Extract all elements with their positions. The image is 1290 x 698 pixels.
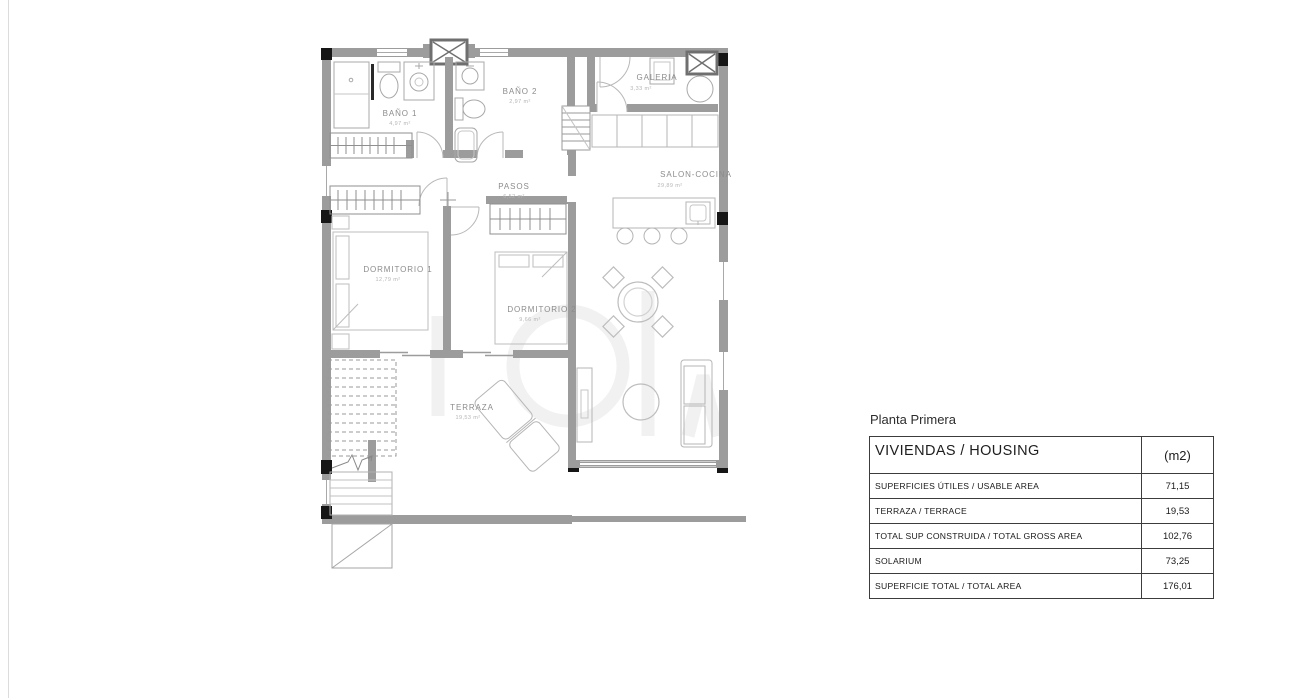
table-header-row: VIVIENDAS / HOUSING (m2): [870, 437, 1214, 474]
room-label-bano1: BAÑO 1: [383, 109, 418, 118]
exterior-stair-ramp: [332, 524, 392, 568]
room-area-terraza: 19,53 m²: [456, 415, 481, 421]
header-m2: (m2): [1142, 437, 1214, 474]
row-value-total-area: 176,01: [1142, 574, 1214, 599]
salon-glass-wall: [580, 462, 716, 467]
room-label-dorm2: DORMITORIO 2: [507, 305, 576, 314]
row-value-usable-area: 71,15: [1142, 474, 1214, 499]
wardrobe-dorm2: [490, 204, 566, 234]
shaft-top-right: [687, 52, 717, 74]
bathroom2-fixtures: [455, 62, 485, 162]
tv-unit: [577, 368, 592, 442]
room-label-pasos: PASOS: [498, 182, 529, 191]
areas-table: VIVIENDAS / HOUSING (m2) SUPERFICIES ÚTI…: [869, 436, 1214, 599]
row-label-solarium: SOLARIUM: [870, 549, 1142, 574]
room-area-salon: 29,89 m²: [658, 183, 683, 189]
floor-plan: BAÑO 1 4,97 m² BAÑO 2 2,97 m² GALERIA 3,…: [318, 36, 748, 581]
kitchen-counter: [592, 115, 718, 147]
wardrobe-bano1: [330, 133, 412, 158]
bathroom1-fixtures: [334, 62, 434, 128]
row-value-terrace: 19,53: [1142, 499, 1214, 524]
salon-door-opening: [567, 176, 577, 202]
row-label-terrace: TERRAZA / TERRACE: [870, 499, 1142, 524]
room-area-bano2: 2,97 m²: [509, 99, 530, 105]
room-label-terraza: TERRAZA: [450, 403, 494, 412]
room-area-dorm1: 12,79 m²: [376, 277, 401, 283]
kitchen-island: [613, 198, 715, 244]
page: BAÑO 1 4,97 m² BAÑO 2 2,97 m² GALERIA 3,…: [0, 0, 1290, 698]
table-row: SUPERFICIES ÚTILES / USABLE AREA 71,15: [870, 474, 1214, 499]
room-label-dorm1: DORMITORIO 1: [363, 265, 432, 274]
staircase: [328, 360, 396, 515]
area-summary: Planta Primera VIVIENDAS / HOUSING (m2) …: [869, 412, 1215, 599]
table-row: SOLARIUM 73,25: [870, 549, 1214, 574]
room-area-bano1: 4,97 m²: [389, 121, 410, 127]
table-row: TOTAL SUP CONSTRUIDA / TOTAL GROSS AREA …: [870, 524, 1214, 549]
room-area-dorm2: 9,66 m²: [519, 317, 540, 323]
room-area-pasos: 6,52 m²: [503, 194, 524, 200]
room-area-galeria: 3,33 m²: [630, 86, 651, 92]
row-label-total-area: SUPERFICIE TOTAL / TOTAL AREA: [870, 574, 1142, 599]
table-title: Planta Primera: [870, 412, 1215, 427]
header-housing: VIVIENDAS / HOUSING: [870, 437, 1142, 474]
row-value-gross-area: 102,76: [1142, 524, 1214, 549]
room-label-bano2: BAÑO 2: [503, 87, 538, 96]
row-label-usable-area: SUPERFICIES ÚTILES / USABLE AREA: [870, 474, 1142, 499]
row-label-gross-area: TOTAL SUP CONSTRUIDA / TOTAL GROSS AREA: [870, 524, 1142, 549]
page-edge-divider: [8, 0, 9, 698]
table-row: SUPERFICIE TOTAL / TOTAL AREA 176,01: [870, 574, 1214, 599]
row-value-solarium: 73,25: [1142, 549, 1214, 574]
room-label-galeria: GALERIA: [637, 73, 678, 82]
table-row: TERRAZA / TERRACE 19,53: [870, 499, 1214, 524]
pantry-shelving: [562, 106, 590, 150]
wardrobe-dorm1: [330, 186, 420, 214]
room-label-salon: SALON-COCINA: [660, 170, 732, 179]
